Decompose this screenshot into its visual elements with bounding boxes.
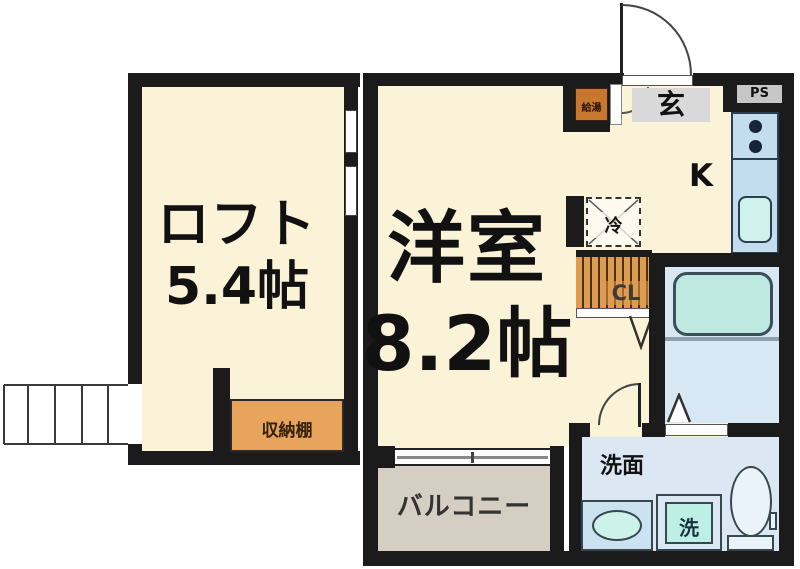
washing-machine: 洗 [656, 494, 722, 551]
water-heater-box: 給湯 [575, 88, 608, 121]
door-rest-strip [610, 84, 622, 125]
floor-plan: 収納棚 ロフト 5.4帖 給湯 玄 PS K [0, 0, 800, 569]
entrance-label: 玄 [632, 90, 710, 120]
room-size-label: 8.2帖 [356, 282, 578, 392]
kitchen-counter [731, 112, 779, 254]
balcony-label: バルコニー [378, 486, 550, 523]
bath-left-wall [649, 253, 665, 437]
kitchen-label: K [683, 158, 719, 194]
fridge-space: 冷 [586, 197, 641, 247]
bath-top-wall [649, 253, 794, 267]
washing-machine-drum: 洗 [665, 502, 713, 544]
kitchen-sink [738, 196, 772, 243]
bath-bottom-wall [728, 423, 779, 437]
balcony-sliding-window [395, 448, 550, 466]
fridge-label: 冷 [588, 212, 639, 238]
entrance-door-arc [622, 4, 692, 75]
washroom-top-wall-left [582, 423, 590, 437]
closet-top-bar [576, 250, 652, 257]
loft-top-wall [128, 73, 360, 87]
stairs [0, 380, 130, 450]
storage-shelf: 収納棚 [230, 399, 344, 452]
entrance-area: 玄 [632, 88, 710, 122]
bath-door-sill [665, 424, 728, 436]
balcony-right-wall [550, 446, 564, 551]
ps-label: PS [737, 86, 782, 102]
toilet-tank [727, 535, 774, 551]
sliding-window-center-tick [471, 452, 474, 463]
water-heater-label: 給湯 [576, 99, 607, 114]
closet-label: CL [604, 281, 648, 305]
loft-bottom-wall [128, 451, 360, 465]
closet: CL [576, 257, 652, 308]
entrance-door-sill [622, 75, 693, 86]
washroom-door-leaf [638, 383, 641, 427]
washroom-label: 洗面 [590, 448, 654, 480]
toilet-bowl [730, 466, 772, 537]
loft-size-label: 5.4帖 [130, 244, 344, 319]
loft-window-lower [345, 166, 357, 216]
washroom-sink-bowl [592, 510, 642, 541]
unit-right-wall [779, 73, 794, 566]
stove-burner-2 [749, 140, 762, 153]
bathtub [673, 272, 773, 336]
bath-divider-line [665, 337, 779, 341]
washroom-top-wall-right [642, 423, 665, 437]
storage-shelf-label: 収納棚 [232, 416, 342, 441]
bath-folding-door-marker [666, 393, 692, 424]
loft-partition-stub [213, 368, 230, 452]
loft-window-upper [345, 110, 357, 153]
window-end-stub [378, 446, 395, 468]
counter-divider [733, 158, 777, 160]
washroom-sink-counter [581, 500, 653, 551]
washer-label: 洗 [667, 512, 711, 541]
toilet-handle [769, 512, 777, 530]
stove-burner-1 [749, 120, 762, 133]
ps-box: PS [737, 85, 782, 103]
